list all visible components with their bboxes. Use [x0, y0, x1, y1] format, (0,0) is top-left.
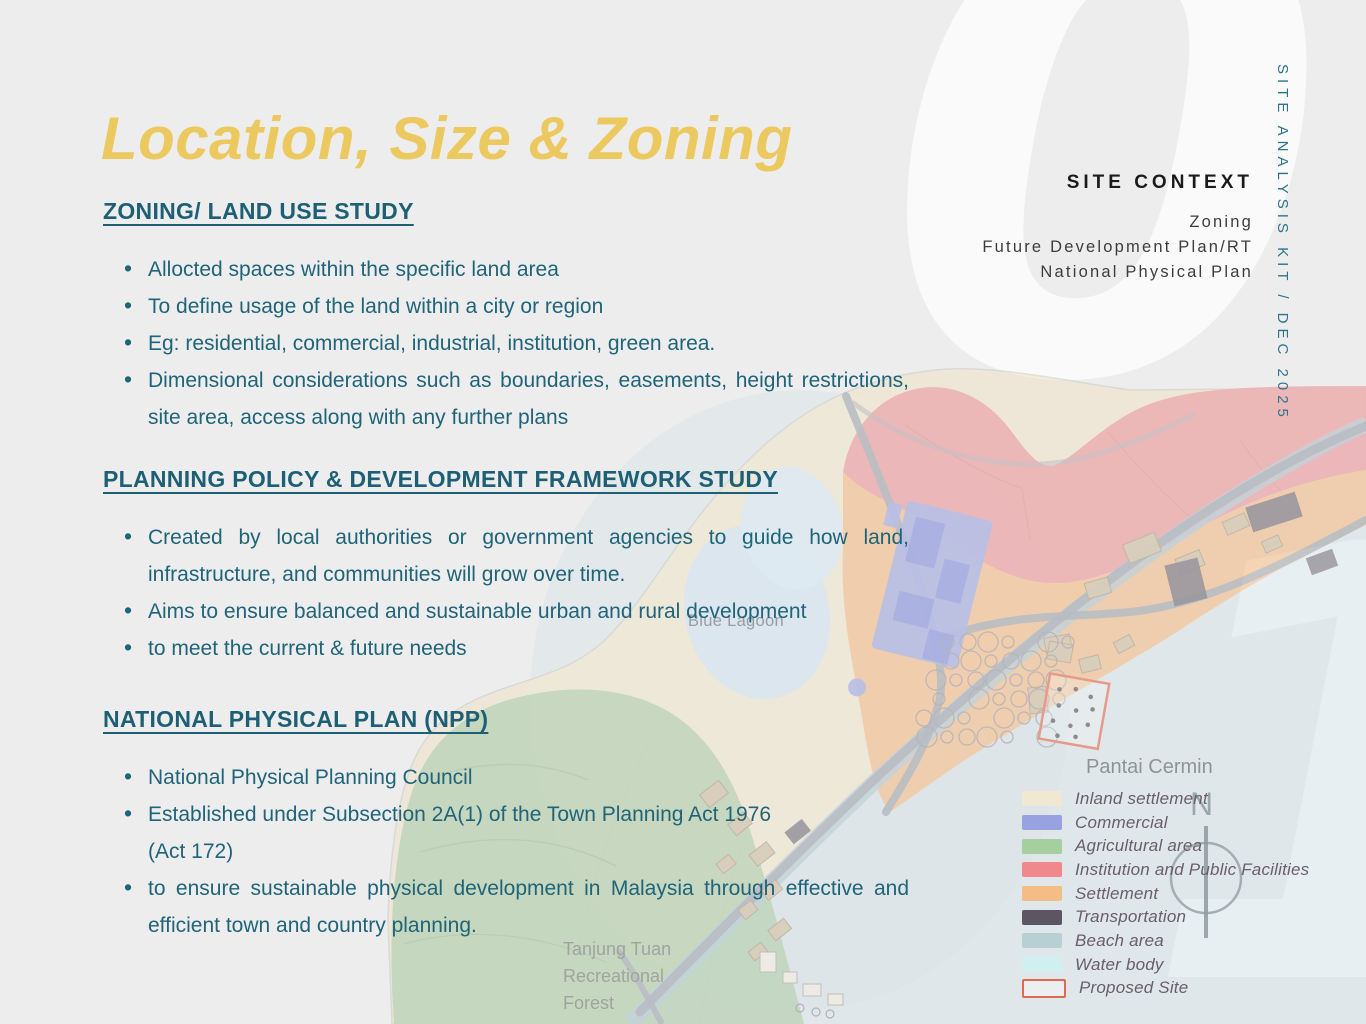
forest-label: Tanjung Tuan Recreational Forest: [563, 936, 671, 1017]
legend-item: Water body: [1022, 953, 1309, 977]
map-legend: Inland settlementCommercialAgricultural …: [1022, 787, 1309, 1000]
legend-swatch: [1022, 791, 1062, 806]
legend-label: Beach area: [1075, 931, 1164, 951]
legend-swatch: [1022, 839, 1062, 854]
legend-swatch: [1022, 979, 1066, 998]
legend-label: Water body: [1075, 955, 1164, 975]
legend-swatch: [1022, 886, 1062, 901]
legend-swatch: [1022, 957, 1062, 972]
legend-label: Inland settlement: [1075, 789, 1208, 809]
legend-title: Pantai Cermin: [1086, 756, 1213, 779]
legend-label: Proposed Site: [1079, 978, 1188, 998]
legend-label: Settlement: [1075, 884, 1158, 904]
legend-item: Settlement: [1022, 882, 1309, 906]
side-tag: SITE ANALYSIS KIT / DEC 2025: [1274, 64, 1291, 422]
legend-item: Institution and Public Facilities: [1022, 858, 1309, 882]
lagoon-label: Blue Lagoon: [688, 612, 784, 631]
legend-item: Transportation: [1022, 905, 1309, 929]
legend-item: Inland settlement: [1022, 787, 1309, 811]
legend-swatch: [1022, 862, 1062, 877]
legend-label: Agricultural area: [1075, 836, 1202, 856]
legend-item: Beach area: [1022, 929, 1309, 953]
legend-item: Proposed Site: [1022, 977, 1309, 1001]
legend-item: Commercial: [1022, 811, 1309, 835]
legend-label: Commercial: [1075, 813, 1168, 833]
legend-label: Transportation: [1075, 907, 1186, 927]
legend-swatch: [1022, 933, 1062, 948]
slide: 0 1: [0, 0, 1366, 1024]
legend-label: Institution and Public Facilities: [1075, 860, 1309, 880]
legend-item: Agricultural area: [1022, 834, 1309, 858]
legend-swatch: [1022, 815, 1062, 830]
legend-swatch: [1022, 910, 1062, 925]
